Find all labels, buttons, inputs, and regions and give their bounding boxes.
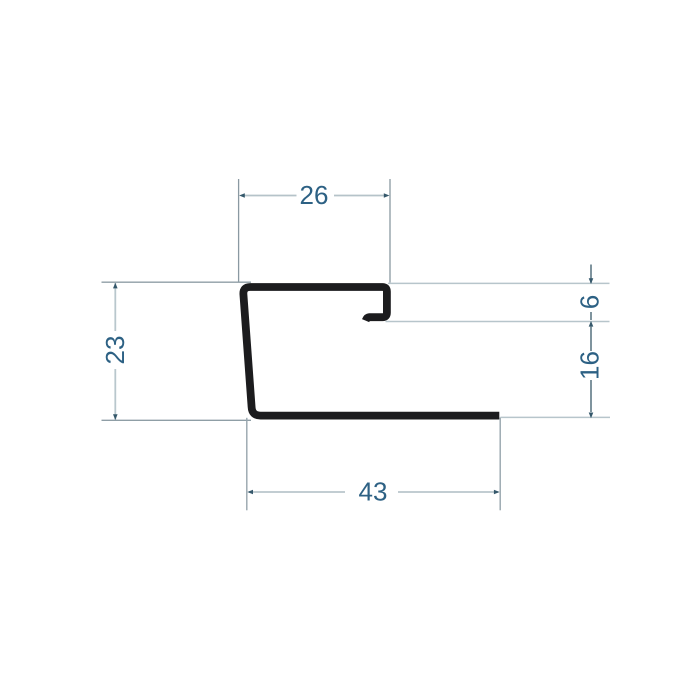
svg-text:6: 6 [575,295,605,309]
svg-text:26: 26 [300,180,329,210]
svg-text:23: 23 [100,336,130,365]
svg-text:16: 16 [575,351,605,380]
svg-text:43: 43 [359,477,388,507]
